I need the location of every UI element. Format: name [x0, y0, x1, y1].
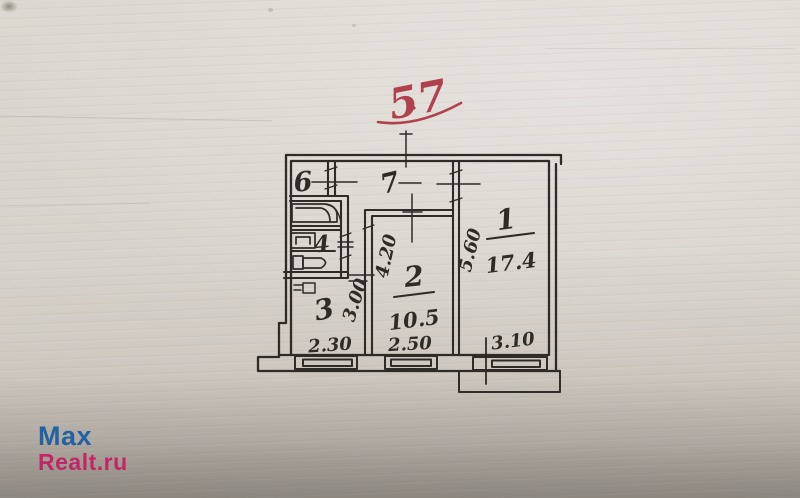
scanned-floor-plan-photo: { "annotation": { "floor_number": "57", …: [0, 0, 800, 498]
room6-wall: [328, 161, 335, 196]
toilet-bowl: [303, 258, 326, 268]
dim-room3-depth: 3.00: [339, 276, 373, 325]
window-frame: [385, 356, 437, 369]
window-frame: [295, 356, 357, 369]
dim-room2-width: 2.50: [387, 333, 433, 356]
room1-area-label: 17.4: [484, 247, 538, 278]
annotation-dot: [412, 106, 415, 109]
room6-number-label: 6: [292, 166, 314, 199]
plan-labels: 6 7 4 3 2 10.5 1 17.4: [292, 166, 538, 335]
washbasin: [291, 233, 315, 248]
window-room2: [385, 356, 437, 369]
dim-room3-width: 2.30: [306, 333, 353, 357]
passage-door-marks: [338, 242, 374, 281]
balcony-outline: [459, 371, 560, 392]
dim-room1-width: 3.10: [490, 328, 537, 354]
electric-panel-symbol: [294, 283, 315, 293]
toilet-cistern: [293, 256, 303, 269]
red-annotation: 57: [378, 70, 461, 129]
bathtub: [292, 204, 337, 222]
room2-number-label: 2: [402, 259, 426, 294]
panel-ticks: [294, 285, 302, 290]
window-frame: [473, 357, 547, 370]
room7-number-label: 7: [377, 166, 403, 201]
washbasin-outline: [291, 233, 315, 248]
room2-area-label: 10.5: [387, 304, 441, 335]
watermark: Max Realt.ru: [38, 423, 128, 474]
dim-room2-depth: 4.20: [372, 232, 402, 280]
window-glazing: [391, 360, 431, 367]
window-room3: [295, 356, 357, 369]
washbasin-bowl: [296, 237, 310, 244]
room4-number-label: 4: [313, 230, 331, 258]
section-axis-room2: [403, 194, 422, 242]
watermark-line2: Realt.ru: [38, 451, 128, 474]
window-glazing: [303, 360, 352, 367]
watermark-line1: Max: [38, 423, 128, 450]
room3-number-label: 3: [311, 291, 337, 327]
room1-number-label: 1: [494, 202, 518, 237]
panel-box: [303, 283, 315, 293]
window-glazing: [492, 361, 540, 368]
